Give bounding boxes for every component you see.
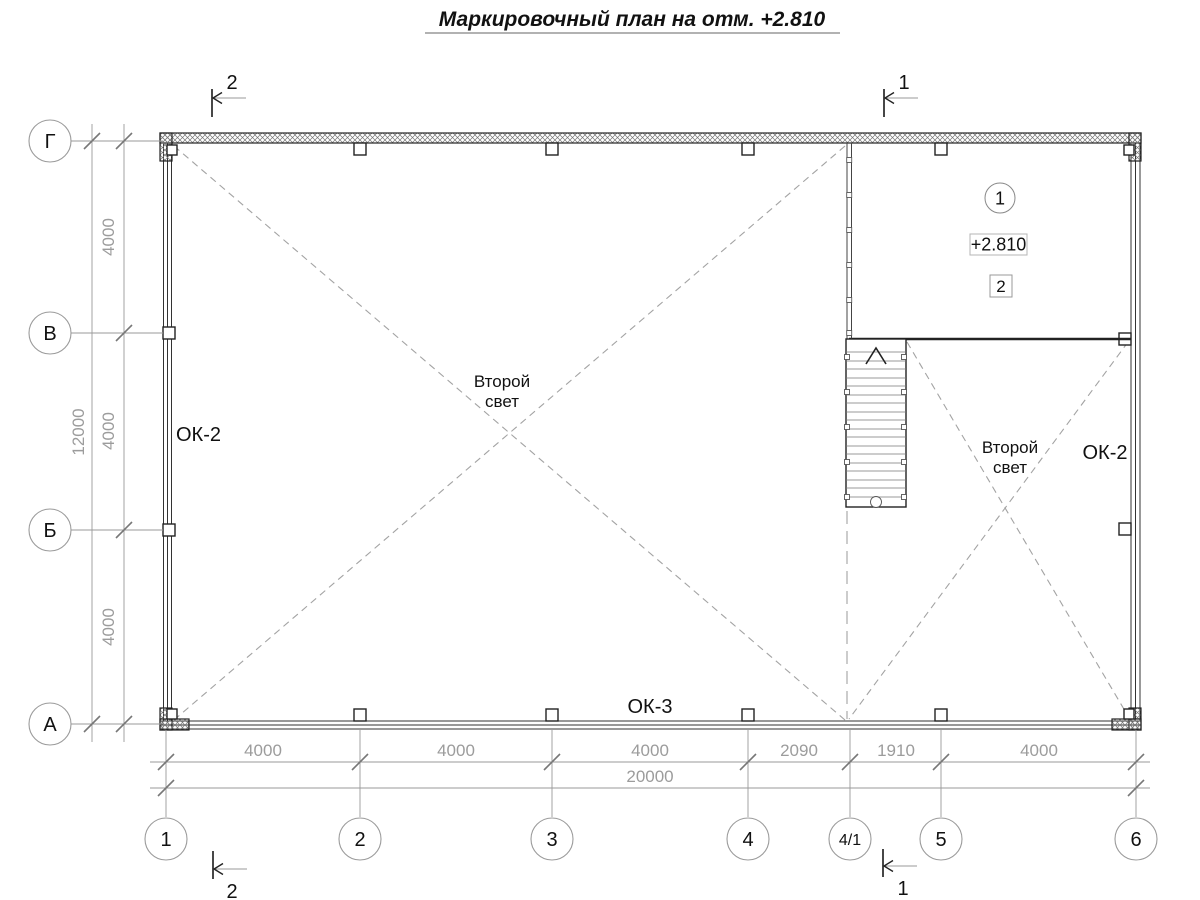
void-label-left-line2: свет: [485, 392, 519, 411]
column-marker: [935, 143, 947, 155]
dimension-value: 4000: [437, 741, 475, 760]
axis-label: 4: [742, 829, 753, 851]
section-label: 1: [898, 72, 909, 94]
column-marker: [546, 143, 558, 155]
detail-mark: 2: [996, 277, 1005, 296]
column-marker: [354, 709, 366, 721]
stair-outline: [846, 339, 906, 507]
section-label: 2: [226, 72, 237, 94]
column-marker: [167, 145, 177, 155]
axis-label: 1: [160, 829, 171, 851]
column-marker: [167, 709, 177, 719]
room-annotations: 1 +2.810 2: [970, 183, 1027, 297]
dimension-value: 2090: [780, 741, 818, 760]
horizontal-dimensions: 4000 4000 4000 2090 1910 4000 20000: [150, 741, 1150, 796]
axis-label: Г: [45, 131, 56, 153]
axis-label: 3: [546, 829, 557, 851]
page-title: Маркировочный план на отм. +2.810: [439, 8, 826, 31]
column-marker: [546, 709, 558, 721]
title-block: Маркировочный план на отм. +2.810: [425, 8, 840, 33]
grid-row-axes: Г В Б А: [29, 120, 163, 745]
dimension-total: 20000: [626, 767, 673, 786]
section-label: 2: [226, 881, 237, 900]
axis-label: 6: [1130, 829, 1141, 851]
stair-newel-circle: [871, 497, 882, 508]
void-label-right-line1: Второй: [982, 438, 1038, 457]
axis-label: 2: [354, 829, 365, 851]
section-label: 1: [897, 878, 908, 900]
dimension-value: 1910: [877, 741, 915, 760]
drawing-canvas: Маркировочный план на отм. +2.810: [0, 0, 1200, 900]
top-wall: [160, 133, 1141, 143]
axis-label: 4/1: [839, 832, 861, 849]
dimension-total: 12000: [69, 408, 88, 455]
staircase: [845, 339, 907, 508]
void-label-right-line2: свет: [993, 458, 1027, 477]
column-marker: [935, 709, 947, 721]
walls: [160, 133, 1141, 730]
column-marker: [354, 143, 366, 155]
dimension-value: 4000: [99, 218, 118, 256]
room-number: 1: [995, 189, 1005, 209]
dimension-value: 4000: [1020, 741, 1058, 760]
dimension-value: 4000: [99, 608, 118, 646]
section-marker-top-2: 2: [212, 72, 246, 117]
axis-label: В: [43, 323, 56, 345]
column-marker: [742, 709, 754, 721]
section-marker-top-1: 1: [884, 72, 918, 117]
column-marker: [163, 327, 175, 339]
section-marker-bottom-2: 2: [213, 851, 247, 900]
column-marker: [1119, 523, 1131, 535]
window-mark-right: ОК-2: [1083, 442, 1128, 464]
void-label-left-line1: Второй: [474, 372, 530, 391]
dimension-value: 4000: [99, 412, 118, 450]
section-marker-bottom-1: 1: [883, 849, 917, 900]
elevation-mark: +2.810: [971, 235, 1027, 255]
axis-label: А: [43, 714, 57, 736]
section-markers: 2 1 2 1: [212, 72, 918, 900]
dimension-value: 4000: [631, 741, 669, 760]
plan-labels: ОК-2 ОК-2 ОК-3 Второй свет Второй свет: [176, 372, 1128, 718]
column-marker: [1124, 709, 1134, 719]
column-marker: [742, 143, 754, 155]
void-diagonals: [174, 146, 1128, 720]
window-mark-bottom: ОК-3: [628, 696, 673, 718]
axis-label: Б: [43, 520, 56, 542]
window-mark-left: ОК-2: [176, 424, 221, 446]
axis-label: 5: [935, 829, 946, 851]
column-marker: [163, 524, 175, 536]
dimension-value: 4000: [244, 741, 282, 760]
vertical-dimensions: 4000 4000 4000 12000: [69, 124, 132, 742]
railing-post: [847, 158, 852, 163]
void-diagonal: [907, 342, 1128, 716]
floor-plan-svg: Маркировочный план на отм. +2.810: [0, 0, 1200, 900]
column-marker: [1124, 145, 1134, 155]
